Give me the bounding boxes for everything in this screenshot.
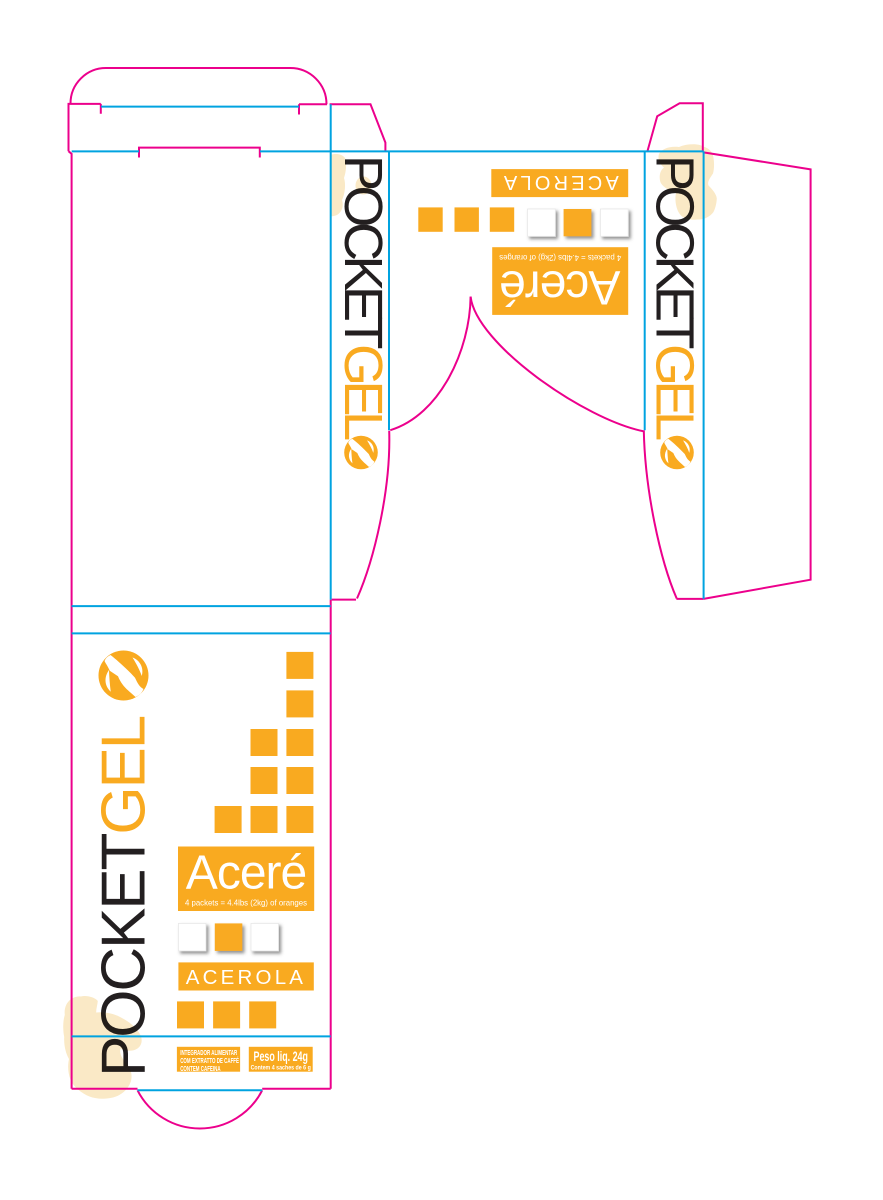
- svg-text:Aceré: Aceré: [500, 261, 620, 314]
- svg-text:Aceré: Aceré: [186, 847, 306, 900]
- svg-text:INTEGRADOR ALIMENTAR: INTEGRADOR ALIMENTAR: [180, 1050, 237, 1057]
- svg-text:COM EXTRATTO DE CAFFÉ: COM EXTRATTO DE CAFFÉ: [180, 1056, 239, 1066]
- svg-text:4 packets = 4.4lbs (2kg) of or: 4 packets = 4.4lbs (2kg) of oranges: [185, 898, 307, 908]
- svg-text:CONTEM CAFEINA: CONTEM CAFEINA: [180, 1066, 221, 1073]
- svg-text:ACEROLA: ACEROLA: [186, 966, 306, 989]
- svg-text:ACEROLA: ACEROLA: [501, 171, 619, 193]
- svg-text:4 packets = 4.4lbs (2kg) of or: 4 packets = 4.4lbs (2kg) of oranges: [499, 253, 621, 263]
- svg-text:Peso liq. 24g: Peso liq. 24g: [254, 1050, 308, 1064]
- svg-text:Contem 4 saches de 6 g: Contem 4 saches de 6 g: [251, 1064, 311, 1072]
